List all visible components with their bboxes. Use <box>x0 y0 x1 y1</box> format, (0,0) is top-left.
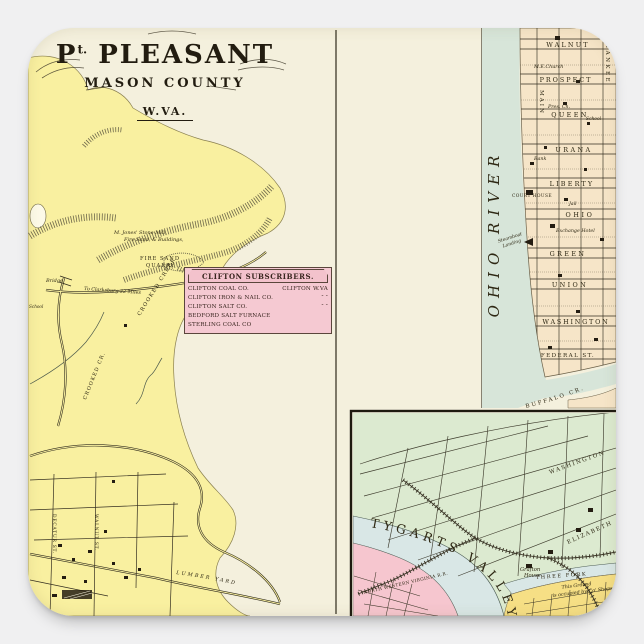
street-federal: FEDERAL ST. <box>541 353 595 359</box>
map-subtitle-county: MASON COUNTY <box>48 76 282 91</box>
jones-mill-label: M. Jones' Stone Mill, <box>113 230 167 236</box>
table-row: BEDFORD SALT FURNACE <box>188 312 328 321</box>
street-prospect: PROSPECT <box>540 76 593 84</box>
street-liberty: LIBERTY <box>550 180 595 188</box>
bank-label: Bank <box>533 156 546 162</box>
me-church-label: M.E.Church <box>533 64 563 70</box>
sticker-product-scene: M. Jones' Stone Mill, Fire Sand, & Build… <box>0 0 644 644</box>
title-superscript: t. <box>77 42 87 56</box>
jail-label: Jail <box>568 201 577 207</box>
ohio-river-city-panel: OHIO RIVER WALNUT PROSPECT QUEEN URANA L… <box>482 28 616 410</box>
street-walnut: WALNUT <box>546 41 590 49</box>
subscriber-name: BEDFORD SALT FURNACE <box>188 312 270 321</box>
map-sticker: M. Jones' Stone Mill, Fire Sand, & Build… <box>28 28 616 616</box>
street-ohio: OHIO <box>566 211 595 219</box>
inset-map-panel: WASHINGTON ELIZABETH Grafton House This … <box>351 411 616 616</box>
subscriber-name: CLIFTON COAL CO. <box>188 285 249 294</box>
subscriber-location: ″ ″ <box>321 303 328 312</box>
walnut-street-label: WALNUT ST. <box>93 514 98 551</box>
table-row: CLIFTON SALT CO. ″ ″ <box>188 303 328 312</box>
exchange-hotel-label: Exchange Hotel <box>555 228 595 234</box>
subscribers-table-title: CLIFTON SUBSCRIBERS. <box>188 269 328 283</box>
clifton-subscribers-table: CLIFTON SUBSCRIBERS. CLIFTON COAL CO. CL… <box>184 267 332 334</box>
jones-mill-label2: Fire Sand, & Buildings, <box>123 237 184 243</box>
street-green: GREEN <box>550 250 587 258</box>
street-urana: URANA <box>555 146 592 154</box>
pres-church-label: Pres. Ch. <box>547 104 571 110</box>
street-main-vertical: MAIN <box>538 90 544 115</box>
street-union: UNION <box>552 281 588 289</box>
subscriber-name: CLIFTON IRON & NAIL CO. <box>188 294 273 303</box>
title-prefix: P <box>56 40 78 70</box>
school-label-city: School <box>586 117 602 122</box>
map-subtitle-state: W.VA. <box>137 105 194 121</box>
subscriber-location: CLIFTON W.VA <box>282 285 328 294</box>
subscriber-location: ″ ″ <box>321 294 328 303</box>
bridge-label: Bridge <box>45 278 63 284</box>
subscriber-name: CLIFTON SALT CO. <box>188 303 247 312</box>
table-row: CLIFTON IRON & NAIL CO. ″ ″ <box>188 294 328 303</box>
subscriber-name: STERLING COAL CO <box>188 321 251 330</box>
map-title: Pt. PLEASANT <box>48 42 282 69</box>
pond <box>30 204 46 228</box>
school-label: School <box>29 304 44 309</box>
yellow-land-region <box>28 56 285 616</box>
map-title-block: Pt. PLEASANT MASON COUNTY W.VA. <box>48 42 282 121</box>
court-house-label: COURT HOUSE <box>512 194 552 199</box>
table-row: STERLING COAL CO <box>188 321 328 330</box>
street-queen: QUEEN <box>551 111 589 119</box>
title-main: PLEASANT <box>98 40 274 70</box>
street-yankee-vertical: YANKEE <box>604 44 610 84</box>
table-row: CLIFTON COAL CO. CLIFTON W.VA <box>188 285 328 294</box>
decatur-street-label: DECATUR ST. <box>51 514 56 554</box>
ohio-river-label: OHIO RIVER <box>485 149 503 318</box>
street-washington: WASHINGTON <box>542 318 609 326</box>
